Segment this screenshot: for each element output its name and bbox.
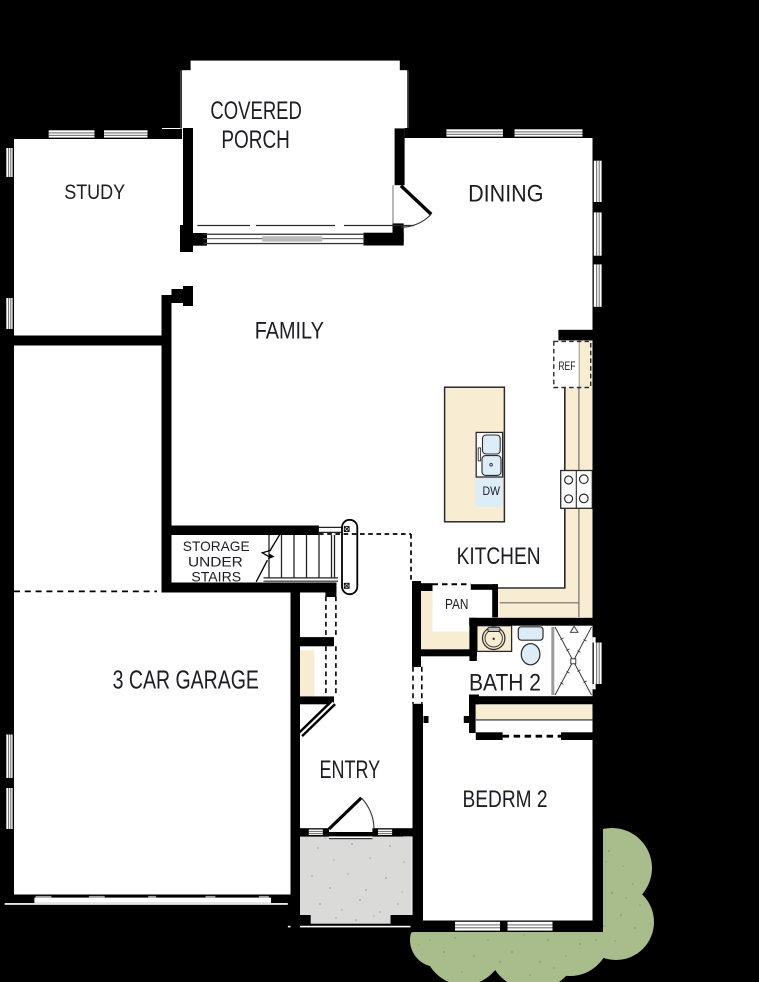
svg-text:KITCHEN: KITCHEN xyxy=(457,543,541,570)
svg-text:FAMILY: FAMILY xyxy=(255,317,324,344)
svg-text:PAN: PAN xyxy=(445,596,469,613)
svg-text:BEDRM 2: BEDRM 2 xyxy=(463,786,548,813)
svg-text:BATH 2: BATH 2 xyxy=(469,670,541,697)
svg-text:ENTRY: ENTRY xyxy=(320,756,381,784)
svg-text:3 CAR GARAGE: 3 CAR GARAGE xyxy=(113,665,259,695)
svg-text:UNDER: UNDER xyxy=(188,554,243,570)
svg-text:DINING: DINING xyxy=(468,180,543,207)
svg-text:STAIRS: STAIRS xyxy=(191,569,241,585)
svg-text:COVERED: COVERED xyxy=(210,97,302,125)
svg-text:PORCH: PORCH xyxy=(221,126,290,154)
svg-text:STUDY: STUDY xyxy=(64,181,125,204)
svg-text:DW: DW xyxy=(483,484,501,498)
svg-text:STORAGE: STORAGE xyxy=(183,538,250,554)
svg-text:REF: REF xyxy=(558,361,575,373)
